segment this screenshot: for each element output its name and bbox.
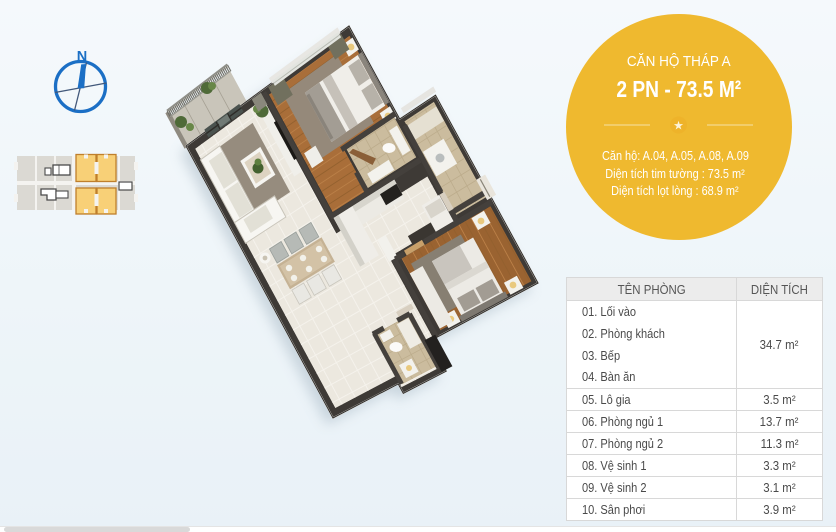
svg-text:★: ★	[673, 119, 684, 133]
